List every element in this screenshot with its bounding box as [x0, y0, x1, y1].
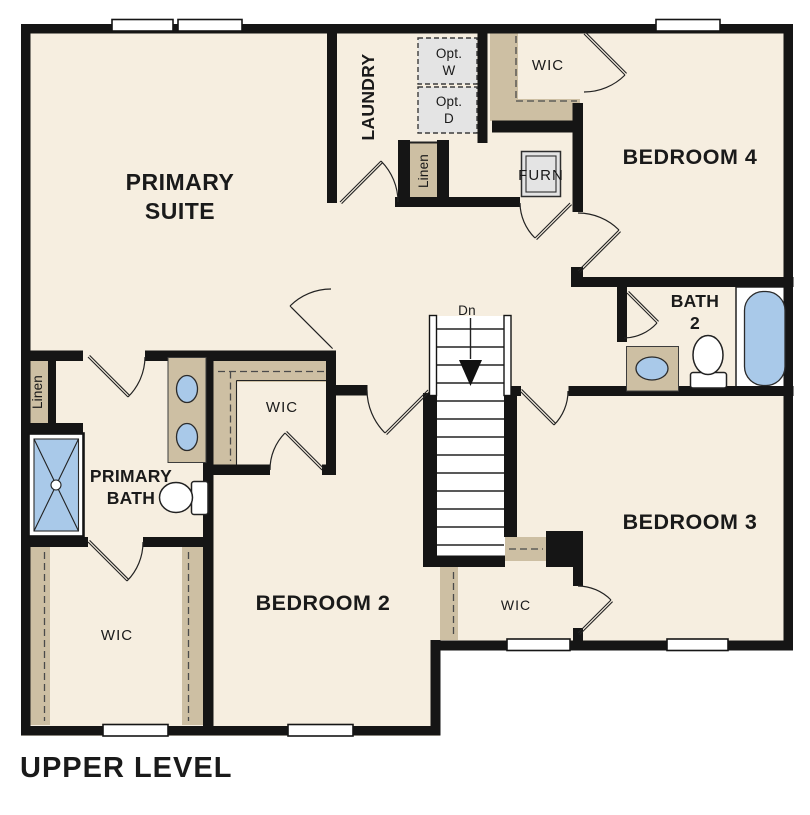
- bath2-vanity: [627, 347, 679, 392]
- stair-rail: [430, 316, 437, 396]
- label-opt-dryer: D: [444, 111, 454, 126]
- shower: [29, 434, 84, 537]
- shelf-wic-primary-large: [30, 547, 50, 725]
- label-linen-hall: Linen: [416, 154, 431, 188]
- sink: [177, 424, 198, 451]
- label-wic-understairs: WIC: [501, 597, 531, 613]
- shower-drain: [51, 480, 61, 490]
- bathtub: [745, 292, 786, 386]
- label-bedroom2: BEDROOM 2: [256, 591, 391, 615]
- label-primary-suite: SUITE: [145, 198, 215, 224]
- label-primary-bath: PRIMARY: [90, 466, 172, 486]
- toilet: [160, 482, 209, 515]
- window: [288, 725, 353, 737]
- label-opt-washer: Opt.: [436, 46, 462, 61]
- label-wic-primary-large: WIC: [101, 627, 133, 644]
- label-bath2: 2: [690, 313, 700, 333]
- window: [656, 20, 720, 32]
- label-primary-suite: PRIMARY: [126, 169, 235, 195]
- label-bedroom3: BEDROOM 3: [623, 510, 758, 534]
- label-stairs-down: Dn: [458, 303, 476, 318]
- label-linen-primary: Linen: [30, 375, 45, 409]
- label-laundry: LAUNDRY: [358, 53, 378, 140]
- shelf-wic-understairs: [440, 567, 458, 640]
- label-wic-bedroom4: WIC: [532, 57, 564, 74]
- label-wic-primary-small: WIC: [266, 399, 298, 416]
- primary-vanity: [168, 358, 206, 463]
- stair-rail: [504, 316, 511, 396]
- floor-plan-drawing: PRIMARY SUITE LAUNDRY Opt. W Opt. D WIC …: [0, 0, 810, 810]
- page-title: UPPER LEVEL: [20, 752, 232, 784]
- window: [507, 639, 570, 651]
- label-furnace: FURN: [518, 167, 564, 184]
- window: [112, 20, 173, 32]
- window: [103, 725, 168, 737]
- label-opt-dryer: Opt.: [436, 94, 462, 109]
- label-primary-bath: BATH: [107, 488, 156, 508]
- window: [178, 20, 242, 32]
- sink: [636, 357, 668, 380]
- label-opt-washer: W: [443, 63, 456, 78]
- window: [667, 639, 728, 651]
- label-bedroom4: BEDROOM 4: [623, 145, 758, 169]
- floor-plan: PRIMARY SUITE LAUNDRY Opt. W Opt. D WIC …: [0, 0, 810, 810]
- label-bath2: BATH: [671, 291, 720, 311]
- sink: [177, 376, 198, 403]
